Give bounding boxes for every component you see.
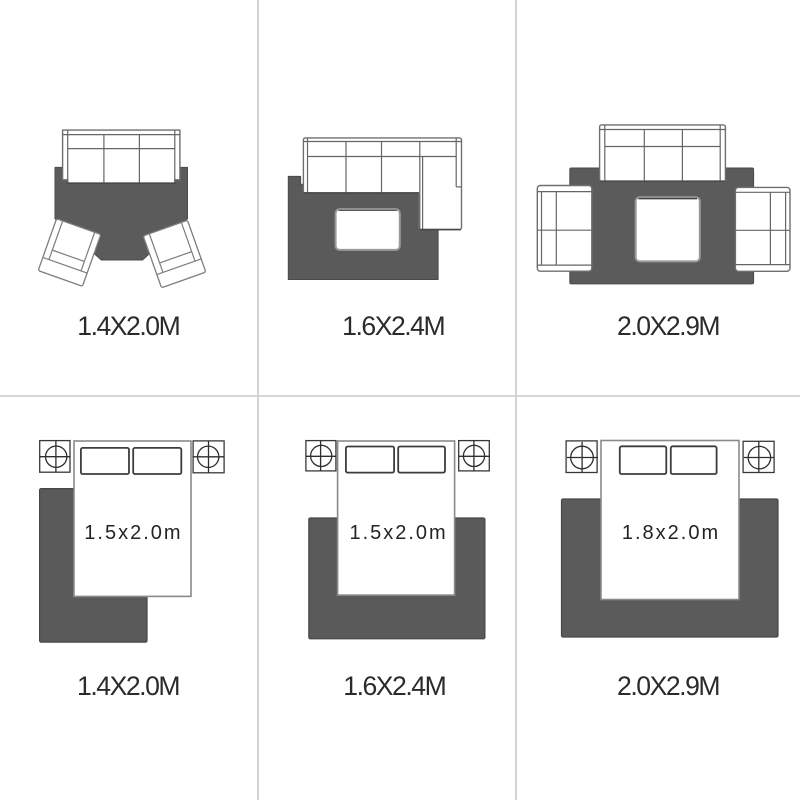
- svg-text:2.0X2.9M: 2.0X2.9M: [617, 311, 721, 341]
- svg-text:2.0X2.9M: 2.0X2.9M: [617, 671, 721, 701]
- svg-text:1.6X2.4M: 1.6X2.4M: [343, 671, 447, 701]
- svg-text:1.6X2.4M: 1.6X2.4M: [342, 311, 446, 341]
- svg-text:1.4X2.0M: 1.4X2.0M: [77, 671, 181, 701]
- svg-text:1.5x2.0m: 1.5x2.0m: [84, 522, 182, 544]
- svg-text:1.8x2.0m: 1.8x2.0m: [622, 522, 720, 544]
- svg-text:1.5x2.0m: 1.5x2.0m: [349, 522, 447, 544]
- svg-text:1.4X2.0M: 1.4X2.0M: [77, 311, 181, 341]
